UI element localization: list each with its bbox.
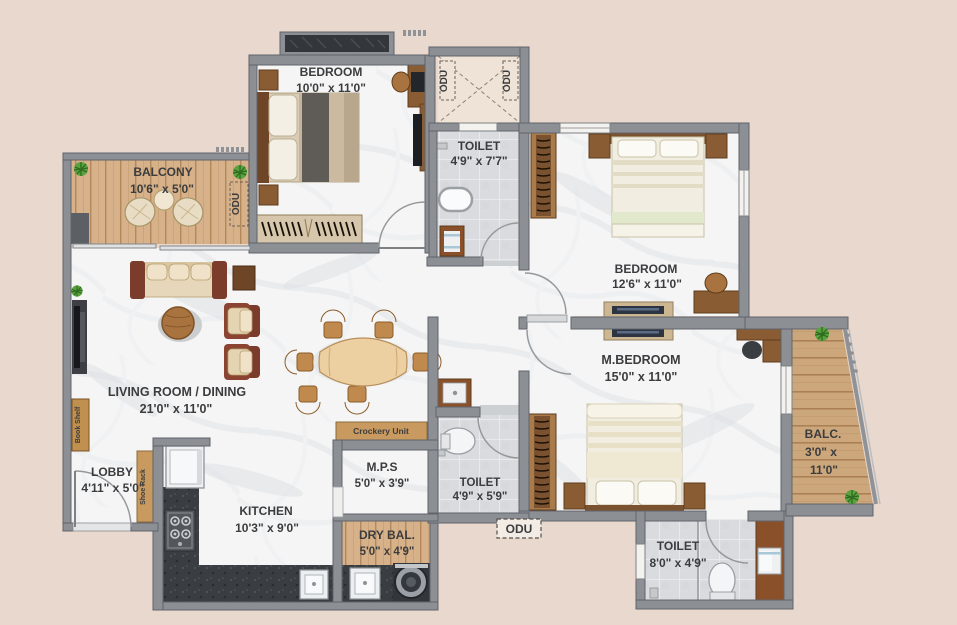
svg-text:10'6" x 5'0": 10'6" x 5'0" bbox=[130, 182, 194, 196]
svg-text:Book Shelf: Book Shelf bbox=[75, 406, 82, 443]
svg-text:LIVING ROOM / DINING: LIVING ROOM / DINING bbox=[108, 385, 246, 399]
svg-text:10'3" x 9'0": 10'3" x 9'0" bbox=[235, 521, 299, 535]
svg-text:M.P.S: M.P.S bbox=[366, 460, 397, 474]
svg-text:BEDROOM: BEDROOM bbox=[300, 65, 363, 79]
svg-text:21'0" x 11'0": 21'0" x 11'0" bbox=[140, 402, 213, 416]
svg-text:DRY BAL.: DRY BAL. bbox=[359, 528, 415, 542]
svg-text:M.BEDROOM: M.BEDROOM bbox=[601, 353, 680, 367]
svg-text:TOILET: TOILET bbox=[458, 139, 501, 153]
svg-text:ODU: ODU bbox=[502, 70, 513, 92]
svg-text:ODU: ODU bbox=[439, 70, 450, 92]
svg-text:BALC.: BALC. bbox=[805, 427, 842, 441]
svg-text:TOILET: TOILET bbox=[460, 477, 501, 489]
svg-text:KITCHEN: KITCHEN bbox=[239, 504, 292, 518]
svg-text:4'9" x 7'7": 4'9" x 7'7" bbox=[450, 154, 507, 168]
svg-text:4'9" x 5'9": 4'9" x 5'9" bbox=[453, 491, 508, 503]
svg-text:5'0" x 3'9": 5'0" x 3'9" bbox=[355, 478, 410, 490]
svg-text:TOILET: TOILET bbox=[657, 539, 700, 553]
svg-text:11'0": 11'0" bbox=[810, 463, 838, 477]
svg-text:8'0" x 4'9": 8'0" x 4'9" bbox=[649, 556, 706, 570]
svg-text:3'0" x: 3'0" x bbox=[805, 445, 837, 459]
svg-text:12'6" x 11'0": 12'6" x 11'0" bbox=[612, 277, 682, 291]
svg-text:10'0" x 11'0": 10'0" x 11'0" bbox=[296, 81, 366, 95]
svg-text:15'0" x 11'0": 15'0" x 11'0" bbox=[605, 370, 678, 384]
svg-text:ODU: ODU bbox=[506, 522, 533, 536]
svg-text:BALCONY: BALCONY bbox=[133, 165, 192, 179]
svg-text:ODU: ODU bbox=[231, 193, 242, 215]
svg-text:LOBBY: LOBBY bbox=[91, 465, 133, 479]
svg-text:BEDROOM: BEDROOM bbox=[615, 262, 678, 276]
svg-text:5'0" x 4'9": 5'0" x 4'9" bbox=[360, 546, 415, 558]
svg-text:4'11" x 5'0": 4'11" x 5'0" bbox=[81, 481, 144, 495]
svg-text:Crockery Unit: Crockery Unit bbox=[353, 426, 409, 436]
